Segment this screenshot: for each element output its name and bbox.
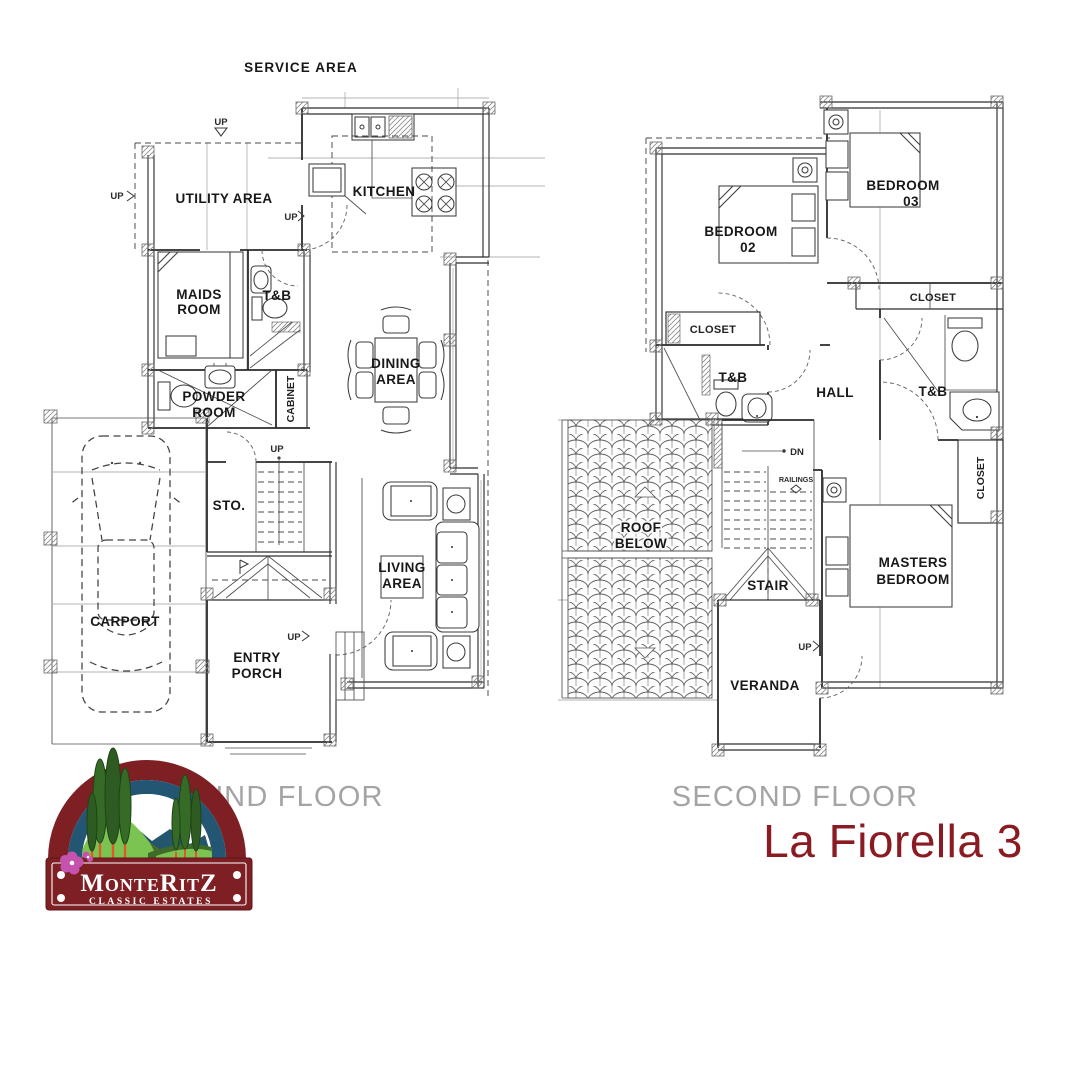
label-kitchen: KITCHEN — [353, 184, 416, 199]
label-dn: DN — [790, 447, 804, 458]
room-carport — [52, 418, 207, 744]
svg-text:ROOM: ROOM — [177, 302, 221, 317]
label-roof-below: ROOF — [621, 520, 662, 535]
lamp-icon — [823, 478, 846, 502]
label-living-area: LIVING — [378, 560, 425, 575]
lamp-icon — [793, 158, 817, 182]
svg-text:PORCH: PORCH — [232, 666, 283, 681]
label-closet-br02: CLOSET — [690, 324, 736, 336]
second-floor-title: SECOND FLOOR — [672, 781, 918, 813]
label-tb-right: T&B — [919, 384, 948, 399]
label-entry-porch: ENTRY — [233, 650, 280, 665]
up-marker-veranda: UP — [798, 641, 819, 653]
label-dining-area: DINING — [371, 356, 421, 371]
room-ground-tb — [250, 250, 310, 372]
plan-title: La Fiorella 3 — [763, 815, 1023, 867]
svg-text:UP: UP — [284, 212, 298, 223]
porch-roof-ridge — [207, 552, 332, 600]
label-tb-ground: T&B — [263, 288, 292, 303]
label-bedroom-03: BEDROOM — [866, 178, 939, 193]
toilet-icon — [948, 318, 982, 361]
room-veranda — [718, 600, 862, 750]
stove-icon — [412, 168, 456, 216]
floorplan-sheet: SERVICE AREA UTILITY AREA KITCHEN MAIDS … — [0, 0, 1080, 1080]
label-powder-room: POWDER — [182, 389, 245, 404]
lamp-icon — [824, 110, 848, 134]
logo-name: MonteRitZ — [80, 870, 217, 897]
svg-text:02: 02 — [740, 240, 756, 255]
svg-text:BELOW: BELOW — [615, 536, 667, 551]
svg-text:UP: UP — [270, 444, 284, 455]
sink-icon — [950, 392, 999, 430]
svg-text:UP: UP — [287, 632, 301, 643]
label-tb-left: T&B — [719, 370, 748, 385]
label-closet-br03: CLOSET — [910, 292, 956, 304]
ground-floor-plan: SERVICE AREA UTILITY AREA KITCHEN MAIDS … — [44, 60, 545, 754]
logo-tagline: CLASSIC ESTATES — [89, 897, 213, 907]
label-bedroom-02: BEDROOM — [704, 224, 777, 239]
svg-text:UP: UP — [798, 642, 812, 653]
label-railings: RAILINGS — [779, 475, 814, 484]
label-sto: STO. — [213, 498, 246, 513]
label-maids-room: MAIDS — [176, 287, 222, 302]
car-icon — [69, 436, 183, 712]
label-masters-bedroom: MASTERS — [879, 555, 948, 570]
floorplan-drawing: SERVICE AREA UTILITY AREA KITCHEN MAIDS … — [0, 0, 1080, 1080]
label-hall: HALL — [816, 385, 854, 400]
sink-icon — [742, 394, 772, 422]
label-veranda: VERANDA — [730, 678, 800, 693]
monteritz-logo: MonteRitZ CLASSIC ESTATES — [46, 748, 252, 910]
sink-icon — [205, 363, 235, 388]
kitchen-cabinet-icon — [309, 164, 345, 196]
svg-text:BEDROOM: BEDROOM — [876, 572, 949, 587]
toilet-icon — [714, 380, 738, 416]
stairs-second — [714, 420, 820, 600]
svg-text:ROOM: ROOM — [192, 405, 236, 420]
room-living-area — [336, 263, 484, 688]
stairs-ground — [207, 418, 332, 552]
label-carport: CARPORT — [90, 614, 160, 629]
roof-below — [562, 420, 712, 698]
room-tb-left — [656, 345, 810, 425]
label-closet-right: CLOSET — [975, 456, 987, 499]
label-stair: STAIR — [747, 578, 789, 593]
label-cabinet: CABINET — [285, 375, 297, 422]
second-floor-plan: BEDROOM 02 BEDROOM 03 CLOSET CLOSET CLOS… — [558, 96, 1003, 756]
svg-text:UP: UP — [214, 117, 228, 128]
svg-text:AREA: AREA — [376, 372, 416, 387]
svg-text:AREA: AREA — [382, 576, 422, 591]
svg-text:UP: UP — [110, 191, 124, 202]
label-utility-area: UTILITY AREA — [175, 191, 272, 206]
svg-text:03: 03 — [903, 194, 919, 209]
label-service-area: SERVICE AREA — [244, 60, 358, 75]
